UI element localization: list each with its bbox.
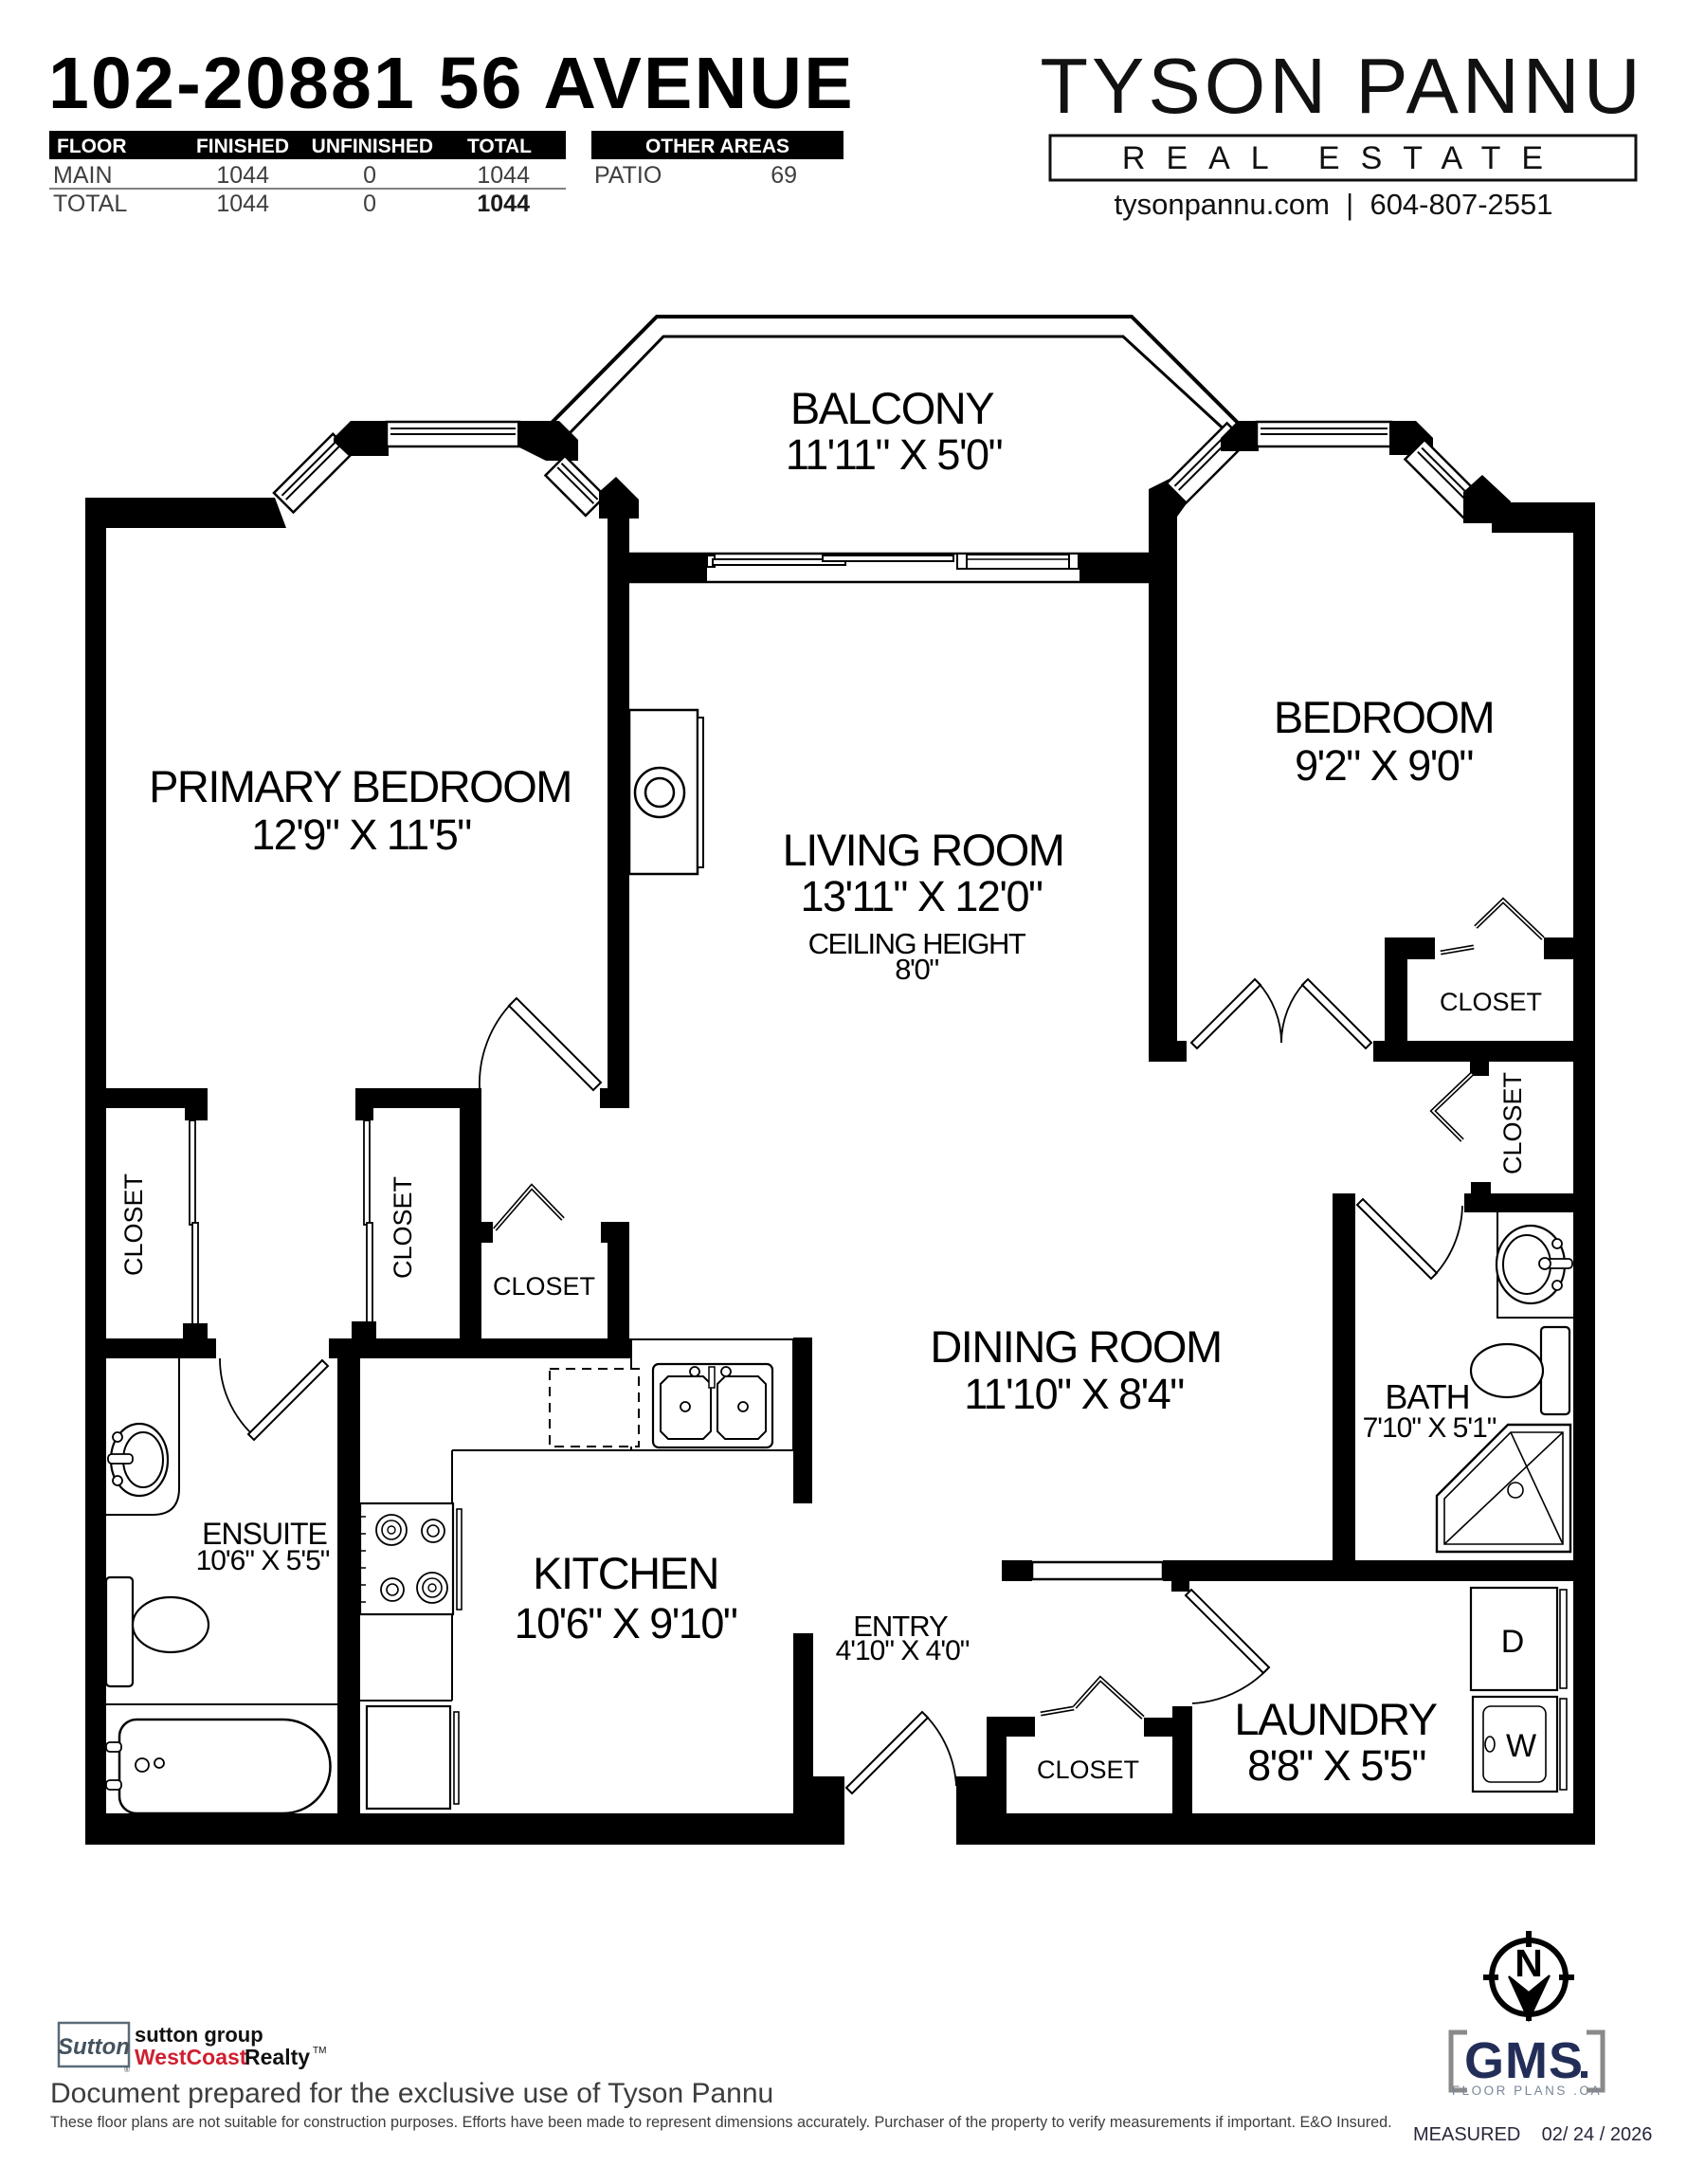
- svg-text:4'10" X 4'0": 4'10" X 4'0": [836, 1635, 970, 1666]
- svg-text:13'11" X 12'0": 13'11" X 12'0": [801, 872, 1043, 920]
- svg-text:12'9" X 11'5": 12'9" X 11'5": [251, 810, 471, 859]
- svg-text:MAIN: MAIN: [53, 162, 113, 189]
- svg-text:69: 69: [771, 162, 797, 189]
- svg-text:CLOSET: CLOSET: [1037, 1756, 1139, 1784]
- svg-text:Realty: Realty: [245, 2045, 310, 2069]
- svg-text:CLOSET: CLOSET: [119, 1174, 148, 1276]
- svg-text:9'2" X 9'0": 9'2" X 9'0": [1295, 741, 1473, 790]
- svg-text:TYSON PANNU: TYSON PANNU: [1040, 42, 1643, 130]
- svg-text:CLOSET: CLOSET: [389, 1176, 417, 1279]
- svg-text:CLOSET: CLOSET: [493, 1272, 595, 1301]
- svg-text:MEASURED 02/ 24 / 2026: MEASURED 02/ 24 / 2026: [1413, 2124, 1652, 2145]
- svg-text:TOTAL: TOTAL: [467, 136, 532, 157]
- svg-text:1044: 1044: [477, 162, 530, 189]
- svg-text:OTHER AREAS: OTHER AREAS: [645, 136, 789, 157]
- svg-text:LIVING ROOM: LIVING ROOM: [783, 825, 1064, 875]
- svg-text:GMS: GMS: [1464, 2032, 1584, 2089]
- svg-text:KITCHEN: KITCHEN: [533, 1548, 718, 1598]
- svg-text:0: 0: [363, 191, 376, 217]
- svg-text:BALCONY: BALCONY: [790, 383, 994, 433]
- svg-text:8'8" X 5'5": 8'8" X 5'5": [1247, 1741, 1425, 1790]
- svg-text:FINISHED: FINISHED: [196, 136, 289, 157]
- svg-text:1044: 1044: [216, 191, 269, 217]
- svg-text:UNFINISHED: UNFINISHED: [312, 136, 433, 157]
- svg-text:102-20881 56 AVENUE: 102-20881 56 AVENUE: [48, 43, 855, 124]
- svg-text:TM: TM: [313, 2046, 326, 2056]
- svg-text:BATH: BATH: [1385, 1377, 1469, 1416]
- svg-text:11'10" X 8'4": 11'10" X 8'4": [964, 1370, 1184, 1418]
- svg-text:®: ®: [124, 2066, 130, 2074]
- svg-text:D: D: [1501, 1624, 1525, 1660]
- svg-text:sutton group: sutton group: [135, 2023, 263, 2047]
- svg-text:10'6" X 5'5": 10'6" X 5'5": [196, 1545, 330, 1576]
- svg-text:0: 0: [363, 162, 376, 189]
- svg-text:CLOSET: CLOSET: [1498, 1072, 1527, 1174]
- svg-text:BEDROOM: BEDROOM: [1274, 692, 1494, 742]
- svg-text:REAL ESTATE: REAL ESTATE: [1122, 140, 1564, 176]
- svg-text:tysonpannu.com | 604-807-255: tysonpannu.com | 604-807-2551: [1114, 188, 1552, 221]
- svg-text:Document prepared for the excl: Document prepared for the exclusive use …: [50, 2078, 773, 2109]
- svg-text:TOTAL: TOTAL: [53, 191, 127, 217]
- svg-text:CLOSET: CLOSET: [1440, 988, 1542, 1016]
- svg-text:11'11" X 5'0": 11'11" X 5'0": [786, 430, 1003, 479]
- svg-text:10'6" X 9'10": 10'6" X 9'10": [515, 1599, 737, 1647]
- svg-text:Sutton: Sutton: [58, 2034, 130, 2060]
- svg-text:W: W: [1506, 1728, 1536, 1764]
- svg-text:7'10" X 5'1": 7'10" X 5'1": [1363, 1412, 1497, 1444]
- svg-text:LAUNDRY: LAUNDRY: [1234, 1694, 1437, 1744]
- svg-text:N: N: [1515, 1941, 1543, 1985]
- svg-text:FLOOR PLANS .CA: FLOOR PLANS .CA: [1452, 2084, 1602, 2098]
- svg-text:DINING ROOM: DINING ROOM: [930, 1321, 1221, 1372]
- svg-text:PRIMARY BEDROOM: PRIMARY BEDROOM: [149, 761, 571, 811]
- svg-text:These floor plans are not suit: These floor plans are not suitable for c…: [50, 2114, 1392, 2131]
- svg-text:WestCoast: WestCoast: [135, 2045, 247, 2069]
- svg-text:8'0": 8'0": [895, 953, 938, 986]
- svg-text:1044: 1044: [477, 191, 530, 217]
- svg-text:PATIO: PATIO: [594, 162, 662, 189]
- svg-text:FLOOR: FLOOR: [57, 136, 127, 157]
- svg-text:1044: 1044: [216, 162, 269, 189]
